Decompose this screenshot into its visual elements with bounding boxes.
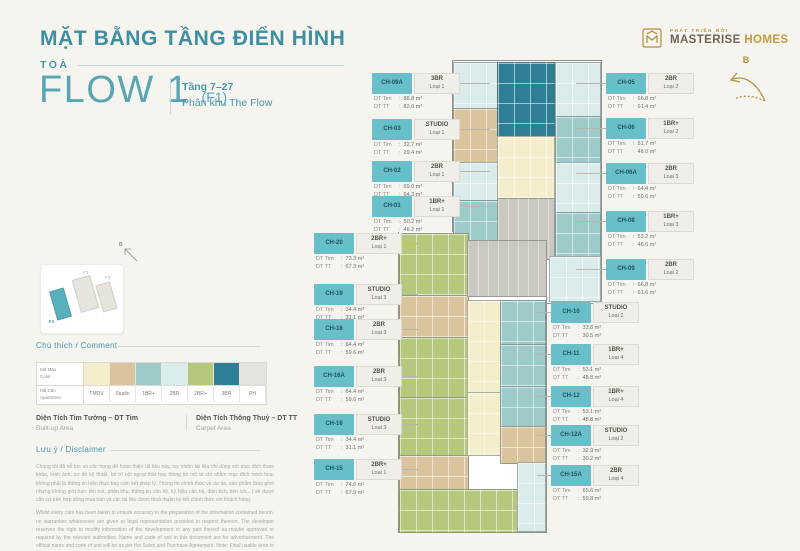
dt-tim-row: DT Tim : 51.7 m² — [606, 141, 694, 147]
dt-tim-value: 74.6 m² — [346, 482, 365, 488]
unit-type: 1BR+ — [649, 120, 693, 129]
unit-code-chip: CH-09 — [606, 259, 646, 280]
floor-plan-sheet: MẶT BẰNG TẦNG ĐIỂN HÌNH TOÀ FLOW 1 (F1) … — [0, 0, 800, 551]
floorplan-unit-ch-09 — [549, 256, 601, 302]
dt-tt-value: 59.6 m² — [638, 194, 657, 200]
unit-type: 2BR — [594, 467, 638, 476]
floorplan-unit-ch-05 — [555, 62, 601, 118]
unit-type: 2BR — [649, 75, 693, 84]
unit-type-chip: STUDIO Loại 3 — [356, 284, 402, 305]
unit-variant: Loại 1 — [415, 84, 459, 92]
floorplan-unit — [467, 300, 502, 394]
floorplan-unit-ch-06a — [555, 162, 601, 214]
unit-callout: CH-12 1BR+ Loại 4 DT Tim : 53.1 m² DT TT… — [551, 386, 639, 423]
unit-code-chip: CH-20 — [314, 233, 354, 254]
unit-code-chip: CH-15 — [314, 459, 354, 480]
dt-tt-value: 82.6 m² — [404, 104, 423, 110]
dt-tim-value: 50.2 m² — [404, 219, 423, 225]
unit-type: STUDIO — [357, 286, 401, 295]
unit-code-chip: CH-03 — [372, 119, 412, 140]
callout-lead-line — [576, 269, 606, 270]
callout-lead-line — [402, 424, 418, 425]
unit-type-chip: STUDIO Loại 2 — [593, 302, 639, 323]
unit-variant: Loại 3 — [649, 174, 693, 182]
unit-type-chip: 1BR+ Loại 4 — [593, 344, 639, 365]
unit-callout: CH-02 2BR Loại 1 DT Tim : 69.0 m² DT TT … — [372, 161, 460, 198]
unit-variant: Loại 1 — [357, 244, 401, 252]
unit-type-chip: STUDIO Loại 3 — [356, 414, 402, 435]
dt-tt-row: DT TT : 48.6 m² — [606, 242, 694, 248]
floorplan-unit-ch-15a — [517, 462, 546, 532]
floorplan-unit-ch-09a — [497, 62, 555, 138]
unit-type-chip: 2BR Loại 3 — [356, 366, 402, 387]
unit-callout: CH-09A 3BR Loại 1 DT Tim : 88.8 m² DT TT… — [372, 73, 460, 110]
unit-code-chip: CH-16A — [314, 366, 354, 387]
unit-type: 3BR — [415, 75, 459, 84]
callout-lead-line — [537, 354, 551, 355]
unit-type: 2BR — [415, 163, 459, 172]
dt-tim-value: 64.4 m² — [346, 389, 365, 395]
unit-code-chip: CH-18 — [314, 319, 354, 340]
unit-callout: CH-16 STUDIO Loại 3 DT Tim : 34.4 m² DT … — [314, 414, 402, 451]
dt-tt-value: 46.2 m² — [404, 227, 423, 233]
dt-tt-row: DT TT : 67.9 m² — [314, 490, 402, 496]
dt-tt-row: DT TT : 59.6 m² — [606, 194, 694, 200]
callout-lead-line — [402, 376, 418, 377]
dt-tim-value: 88.8 m² — [404, 96, 423, 102]
dt-tt-value: 30.2 m² — [583, 456, 602, 462]
unit-callout: CH-12A STUDIO Loại 2 DT Tim : 32.9 m² DT… — [551, 425, 639, 462]
floorplan-unit-ch-16a — [399, 397, 469, 457]
dt-tim-value: 65.6 m² — [583, 488, 602, 494]
callout-lead-line — [537, 435, 551, 436]
floorplan-unit-ch-18 — [399, 337, 469, 399]
dt-tt-row: DT TT : 61.4 m² — [606, 104, 694, 110]
dt-tt-value: 59.6 m² — [346, 350, 365, 356]
unit-type-chip: 2BR Loại 1 — [414, 161, 460, 182]
unit-type-chip: 2BR Loại 2 — [648, 259, 694, 280]
floorplan-unit-ch-15 — [399, 489, 519, 533]
unit-type-chip: 2BR Loại 2 — [648, 73, 694, 94]
dt-tim-value: 33.8 m² — [583, 325, 602, 331]
unit-type: 2BR — [649, 165, 693, 174]
dt-tim-row: DT Tim : 32.7 m² — [372, 142, 460, 148]
dt-tim-row: DT Tim : 53.1 m² — [551, 367, 639, 373]
unit-type-chip: 2BR+ Loại 1 — [356, 233, 402, 254]
unit-variant: Loại 2 — [649, 129, 693, 137]
dt-tim-value: 64.4 m² — [638, 186, 657, 192]
dt-tt-value: 67.3 m² — [346, 264, 365, 270]
callout-lead-line — [460, 171, 490, 172]
callout-lead-line — [402, 469, 418, 470]
unit-type-chip: STUDIO Loại 1 — [414, 119, 460, 140]
unit-callout: CH-03 STUDIO Loại 1 DT Tim : 32.7 m² DT … — [372, 119, 460, 156]
dt-tt-row: DT TT : 30.2 m² — [551, 456, 639, 462]
callout-lead-line — [402, 243, 418, 244]
unit-type: STUDIO — [594, 304, 638, 313]
unit-type: 2BR — [649, 261, 693, 270]
dt-tt-value: 29.4 m² — [404, 150, 423, 156]
dt-tt-value: 30.5 m² — [583, 333, 602, 339]
unit-callout: CH-06A 2BR Loại 3 DT Tim : 64.4 m² DT TT… — [606, 163, 694, 200]
dt-tim-row: DT Tim : 50.2 m² — [372, 219, 460, 225]
dt-tim-row: DT Tim : 33.8 m² — [551, 325, 639, 331]
dt-tt-row: DT TT : 59.6 m² — [314, 397, 402, 403]
dt-tim-value: 66.8 m² — [638, 96, 657, 102]
unit-code-chip: CH-15A — [551, 465, 591, 486]
callout-lead-line — [460, 129, 490, 130]
dt-tim-row: DT Tim : 32.9 m² — [551, 448, 639, 454]
unit-variant: Loại 4 — [594, 355, 638, 363]
unit-type-chip: 2BR+ Loại 1 — [356, 459, 402, 480]
unit-type: 1BR+ — [415, 198, 459, 207]
floorplan-unit-ch-10 — [500, 300, 546, 346]
dt-tim-value: 53.1 m² — [583, 367, 602, 373]
callout-lead-line — [576, 83, 606, 84]
dt-tt-value: 61.4 m² — [638, 104, 657, 110]
unit-type: 2BR+ — [357, 461, 401, 470]
unit-code-chip: CH-19 — [314, 284, 354, 305]
unit-variant: Loại 1 — [415, 207, 459, 215]
dt-tt-row: DT TT : 46.2 m² — [372, 227, 460, 233]
unit-callout: CH-11 1BR+ Loại 4 DT Tim : 53.1 m² DT TT… — [551, 344, 639, 381]
unit-variant: Loại 1 — [357, 470, 401, 478]
dt-tt-row: DT TT : 29.4 m² — [372, 150, 460, 156]
unit-variant: Loại 1 — [415, 172, 459, 180]
dt-tim-value: 66.8 m² — [638, 282, 657, 288]
dt-tt-value: 48.0 m² — [638, 149, 657, 155]
unit-variant: Loại 3 — [357, 330, 401, 338]
dt-tim-value: 34.4 m² — [346, 437, 365, 443]
dt-tim-row: DT Tim : 88.8 m² — [372, 96, 460, 102]
callout-lead-line — [576, 221, 606, 222]
dt-tt-row: DT TT : 59.6 m² — [314, 350, 402, 356]
dt-tim-row: DT Tim : 64.4 m² — [314, 389, 402, 395]
dt-tim-row: DT Tim : 74.6 m² — [314, 482, 402, 488]
unit-variant: Loại 2 — [649, 84, 693, 92]
dt-tt-row: DT TT : 59.8 m² — [551, 496, 639, 502]
dt-tt-row: DT TT : 67.3 m² — [314, 264, 402, 270]
callout-lead-line — [576, 173, 606, 174]
floorplan-unit-ch-06 — [555, 116, 601, 164]
callout-lead-line — [537, 396, 551, 397]
unit-variant: Loại 3 — [649, 222, 693, 230]
unit-code-chip: CH-08 — [606, 211, 646, 232]
unit-type: 2BR — [357, 368, 401, 377]
callout-lead-line — [460, 206, 490, 207]
floorplan-unit-ch-19 — [399, 295, 469, 339]
dt-tim-row: DT Tim : 64.4 m² — [606, 186, 694, 192]
dt-tim-row: DT Tim : 66.8 m² — [606, 282, 694, 288]
unit-type-chip: 2BR Loại 4 — [593, 465, 639, 486]
dt-tt-row: DT TT : 48.8 m² — [551, 375, 639, 381]
callout-lead-line — [460, 83, 490, 84]
callout-lead-line — [402, 329, 418, 330]
unit-type-chip: 1BR+ Loại 3 — [648, 211, 694, 232]
unit-variant: Loại 3 — [357, 295, 401, 303]
unit-type: 1BR+ — [649, 213, 693, 222]
unit-code-chip: CH-09A — [372, 73, 412, 94]
dt-tim-row: DT Tim : 34.4 m² — [314, 437, 402, 443]
floorplan-unit-ch-11 — [500, 344, 546, 388]
dt-tt-value: 48.8 m² — [583, 375, 602, 381]
dt-tim-row: DT Tim : 65.6 m² — [551, 488, 639, 494]
callout-lead-line — [537, 475, 551, 476]
floorplan-unit-ch-12 — [500, 386, 546, 428]
floorplan-unit-ch-12a — [500, 426, 546, 464]
floorplan-core-lower — [467, 240, 547, 297]
dt-tim-value: 51.7 m² — [638, 141, 657, 147]
unit-type: STUDIO — [415, 121, 459, 130]
dt-tt-row: DT TT : 30.5 m² — [551, 333, 639, 339]
dt-tt-row: DT TT : 31.1 m² — [314, 445, 402, 451]
dt-tim-value: 53.2 m² — [638, 234, 657, 240]
dt-tim-row: DT Tim : 53.2 m² — [606, 234, 694, 240]
dt-tt-value: 61.6 m² — [638, 290, 657, 296]
unit-callout: CH-16A 2BR Loại 3 DT Tim : 64.4 m² DT TT… — [314, 366, 402, 403]
unit-code-chip: CH-11 — [551, 344, 591, 365]
dt-tt-value: 31.1 m² — [346, 445, 365, 451]
unit-variant: Loại 2 — [649, 270, 693, 278]
dt-tt-value: 59.6 m² — [346, 397, 365, 403]
unit-callout: CH-19 STUDIO Loại 3 DT Tim : 34.4 m² DT … — [314, 284, 402, 321]
dt-tim-value: 73.3 m² — [346, 256, 365, 262]
unit-type: STUDIO — [594, 427, 638, 436]
dt-tim-row: DT Tim : 34.4 m² — [314, 307, 402, 313]
dt-tim-row: DT Tim : 69.0 m² — [372, 184, 460, 190]
unit-type: 2BR+ — [357, 235, 401, 244]
unit-callout: CH-06 1BR+ Loại 2 DT Tim : 51.7 m² DT TT… — [606, 118, 694, 155]
unit-callout: CH-20 2BR+ Loại 1 DT Tim : 73.3 m² DT TT… — [314, 233, 402, 270]
unit-code-chip: CH-10 — [551, 302, 591, 323]
unit-code-chip: CH-06A — [606, 163, 646, 184]
dt-tt-value: 48.8 m² — [583, 417, 602, 423]
dt-tim-value: 34.4 m² — [346, 307, 365, 313]
unit-code-chip: CH-05 — [606, 73, 646, 94]
unit-type-chip: 1BR+ Loại 4 — [593, 386, 639, 407]
unit-type-chip: STUDIO Loại 2 — [593, 425, 639, 446]
unit-type-chip: 3BR Loại 1 — [414, 73, 460, 94]
callout-lead-line — [402, 294, 418, 295]
dt-tt-row: DT TT : 61.6 m² — [606, 290, 694, 296]
unit-code-chip: CH-12A — [551, 425, 591, 446]
unit-type: 2BR — [357, 321, 401, 330]
unit-type-chip: 1BR+ Loại 1 — [414, 196, 460, 217]
unit-variant: Loại 2 — [594, 436, 638, 444]
dt-tt-row: DT TT : 48.0 m² — [606, 149, 694, 155]
unit-type: 1BR+ — [594, 388, 638, 397]
unit-variant: Loại 1 — [415, 130, 459, 138]
dt-tt-value: 48.6 m² — [638, 242, 657, 248]
dt-tt-row: DT TT : 82.6 m² — [372, 104, 460, 110]
unit-variant: Loại 4 — [594, 476, 638, 484]
floorplan-unit-ch-16 — [399, 455, 469, 491]
dt-tim-row: DT Tim : 73.3 m² — [314, 256, 402, 262]
dt-tim-value: 64.4 m² — [346, 342, 365, 348]
dt-tim-value: 69.0 m² — [404, 184, 423, 190]
unit-variant: Loại 3 — [357, 377, 401, 385]
unit-type-chip: 1BR+ Loại 2 — [648, 118, 694, 139]
dt-tim-row: DT Tim : 64.4 m² — [314, 342, 402, 348]
dt-tim-value: 32.7 m² — [404, 142, 423, 148]
unit-code-chip: CH-02 — [372, 161, 412, 182]
dt-tt-row: DT TT : 48.8 m² — [551, 417, 639, 423]
unit-callout: CH-05 2BR Loại 2 DT Tim : 66.8 m² DT TT … — [606, 73, 694, 110]
unit-callout: CH-15A 2BR Loại 4 DT Tim : 65.6 m² DT TT… — [551, 465, 639, 502]
dt-tim-row: DT Tim : 53.1 m² — [551, 409, 639, 415]
unit-code-chip: CH-12 — [551, 386, 591, 407]
unit-callout: CH-18 2BR Loại 3 DT Tim : 64.4 m² DT TT … — [314, 319, 402, 356]
floorplan-unit-ch-08 — [555, 212, 601, 258]
unit-callout: CH-15 2BR+ Loại 1 DT Tim : 74.6 m² DT TT… — [314, 459, 402, 496]
unit-callout: CH-09 2BR Loại 2 DT Tim : 66.8 m² DT TT … — [606, 259, 694, 296]
dt-tt-value: 67.9 m² — [346, 490, 365, 496]
unit-callout: CH-10 STUDIO Loại 2 DT Tim : 33.8 m² DT … — [551, 302, 639, 339]
unit-code-chip: CH-06 — [606, 118, 646, 139]
dt-tim-value: 53.1 m² — [583, 409, 602, 415]
callout-lead-line — [576, 128, 606, 129]
callout-lead-line — [537, 312, 551, 313]
unit-variant: Loại 2 — [594, 313, 638, 321]
floorplan-unit — [467, 392, 502, 456]
unit-code-chip: CH-01 — [372, 196, 412, 217]
floorplan-unit — [497, 136, 555, 200]
unit-callout: CH-01 1BR+ Loại 1 DT Tim : 50.2 m² DT TT… — [372, 196, 460, 233]
unit-variant: Loại 4 — [594, 397, 638, 405]
unit-type: STUDIO — [357, 416, 401, 425]
unit-code-chip: CH-16 — [314, 414, 354, 435]
unit-type-chip: 2BR Loại 3 — [356, 319, 402, 340]
dt-tim-value: 32.9 m² — [583, 448, 602, 454]
dt-tt-value: 59.8 m² — [583, 496, 602, 502]
dt-tim-row: DT Tim : 66.8 m² — [606, 96, 694, 102]
unit-variant: Loại 3 — [357, 425, 401, 433]
unit-type: 1BR+ — [594, 346, 638, 355]
unit-type-chip: 2BR Loại 3 — [648, 163, 694, 184]
unit-callout: CH-08 1BR+ Loại 3 DT Tim : 53.2 m² DT TT… — [606, 211, 694, 248]
